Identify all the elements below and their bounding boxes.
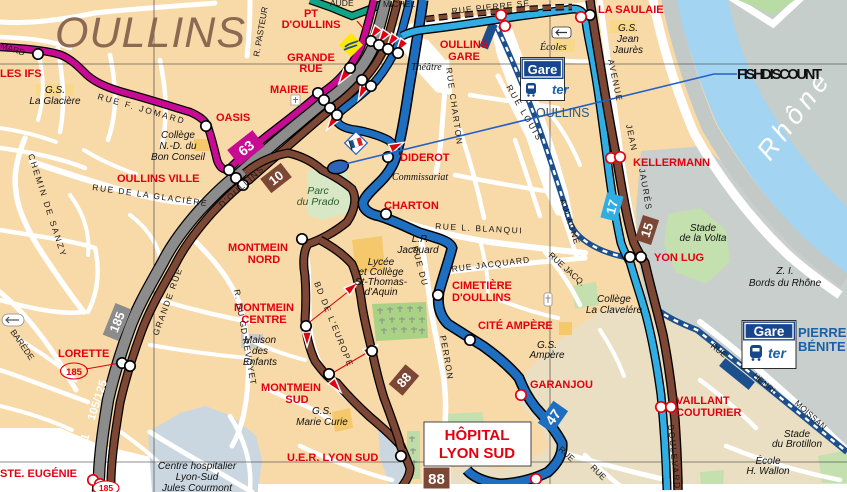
svg-text:LA SAULAIE: LA SAULAIE xyxy=(598,4,664,16)
svg-text:Centre hospitalier: Centre hospitalier xyxy=(158,461,237,472)
svg-text:MONTMEIN: MONTMEIN xyxy=(228,242,288,254)
svg-text:Marie Curie: Marie Curie xyxy=(296,417,348,428)
svg-text:RUE: RUE xyxy=(299,63,322,75)
svg-text:D'OULLINS: D'OULLINS xyxy=(452,292,511,304)
svg-text:Ampère: Ampère xyxy=(528,350,564,361)
svg-text:D'OULLINS: D'OULLINS xyxy=(282,19,341,31)
svg-text:Théâtre: Théâtre xyxy=(411,62,442,73)
svg-text:H. Wallon: H. Wallon xyxy=(746,466,790,477)
svg-text:OULLINS: OULLINS xyxy=(55,9,246,57)
svg-text:N.-D. du: N.-D. du xyxy=(159,141,197,152)
svg-text:Gare: Gare xyxy=(754,324,785,339)
svg-text:G.S.: G.S. xyxy=(312,406,332,417)
svg-text:Collège: Collège xyxy=(597,294,631,305)
svg-text:NORD: NORD xyxy=(248,254,280,266)
svg-text:Bords du Rhône: Bords du Rhône xyxy=(749,278,822,289)
svg-text:STE. EUGÉNIE: STE. EUGÉNIE xyxy=(0,467,77,480)
svg-text:SUD: SUD xyxy=(285,394,308,406)
svg-text:CIMETIÈRE: CIMETIÈRE xyxy=(452,279,512,292)
svg-text:LES IFS: LES IFS xyxy=(0,68,42,80)
svg-text:GARANJOU: GARANJOU xyxy=(530,379,593,391)
svg-text:du Prado: du Prado xyxy=(297,196,340,208)
svg-text:de la Volta: de la Volta xyxy=(680,233,727,244)
svg-text:Lyon-Sud: Lyon-Sud xyxy=(176,472,219,483)
svg-text:Jean: Jean xyxy=(616,34,639,45)
svg-text:LORETTE: LORETTE xyxy=(58,348,109,360)
svg-text:MICHEL: MICHEL xyxy=(383,0,415,9)
svg-text:OASIS: OASIS xyxy=(216,112,250,124)
svg-text:OULLINS: OULLINS xyxy=(536,106,590,120)
svg-text:PIERRE-: PIERRE- xyxy=(798,325,847,340)
svg-text:ter: ter xyxy=(768,345,787,361)
svg-text:DIDEROT: DIDEROT xyxy=(400,152,450,164)
svg-text:OULLINS: OULLINS xyxy=(440,39,488,51)
svg-text:Z. I.: Z. I. xyxy=(775,266,793,277)
svg-text:YON LUG: YON LUG xyxy=(654,252,704,264)
svg-text:FISHDISCOUNT: FISHDISCOUNT xyxy=(737,67,822,83)
svg-text:MAIRIE: MAIRIE xyxy=(270,84,309,96)
svg-text:MONTMEIN: MONTMEIN xyxy=(261,382,321,394)
svg-text:ter: ter xyxy=(552,82,570,97)
svg-text:Jules Courmont: Jules Courmont xyxy=(161,483,233,492)
svg-text:CITÉ AMPÈRE: CITÉ AMPÈRE xyxy=(478,319,553,332)
svg-text:185: 185 xyxy=(99,483,113,492)
svg-text:La Clavelére: La Clavelére xyxy=(586,305,643,316)
svg-text:Collège: Collège xyxy=(161,130,195,141)
svg-text:Bon Conseil: Bon Conseil xyxy=(151,152,206,163)
svg-text:G.S.: G.S. xyxy=(45,85,65,96)
svg-text:Écoles: Écoles xyxy=(539,41,567,53)
svg-text:BÉNITE: BÉNITE xyxy=(798,339,846,354)
svg-text:CHARTON: CHARTON xyxy=(384,200,439,212)
svg-text:du Brotillon: du Brotillon xyxy=(772,439,822,450)
svg-text:GARE: GARE xyxy=(448,51,480,63)
svg-text:VAILLANT: VAILLANT xyxy=(676,395,730,407)
svg-text:COUTURIER: COUTURIER xyxy=(676,407,741,419)
svg-text:88: 88 xyxy=(428,471,445,488)
svg-text:Jaurès: Jaurès xyxy=(612,45,643,56)
svg-text:OULLINS VILLE: OULLINS VILLE xyxy=(117,173,200,185)
svg-text:L.P.: L.P. xyxy=(412,234,429,245)
svg-text:Commissariat: Commissariat xyxy=(392,172,448,183)
svg-text:U.E.R. LYON SUD: U.E.R. LYON SUD xyxy=(287,452,378,464)
svg-text:G.S.: G.S. xyxy=(618,23,638,34)
svg-text:La Glacière: La Glacière xyxy=(29,96,81,107)
svg-text:185: 185 xyxy=(66,367,83,378)
svg-text:Gare: Gare xyxy=(528,62,558,77)
svg-text:HÔPITAL: HÔPITAL xyxy=(445,426,510,444)
svg-text:d'Aquin: d'Aquin xyxy=(364,287,397,298)
svg-text:AUDE: AUDE xyxy=(330,0,354,8)
svg-text:LYON SUD: LYON SUD xyxy=(439,445,515,462)
